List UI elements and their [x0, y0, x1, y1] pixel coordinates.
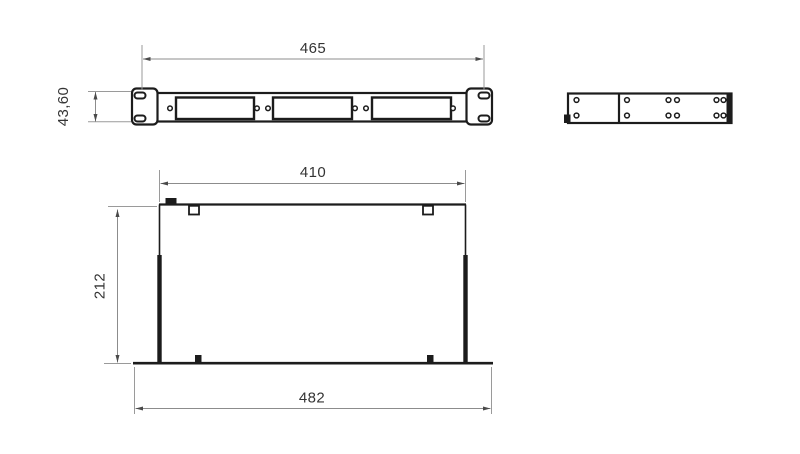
ear-slot: [135, 116, 146, 122]
top-view-front-tab: [166, 198, 177, 205]
panel-cutout: [273, 98, 352, 120]
side-hole: [574, 113, 579, 118]
arrowhead-down: [116, 355, 120, 363]
arrowhead-left: [161, 182, 169, 186]
dim-top-overall-width: 482: [135, 367, 492, 414]
arrowhead-left: [143, 57, 151, 61]
dim-front-height: 43,60: [55, 87, 131, 127]
top-view-notch: [189, 206, 199, 215]
side-hole: [714, 98, 719, 103]
side-body: [568, 94, 732, 124]
side-hole: [574, 98, 579, 103]
side-hole: [675, 98, 680, 103]
dim-label-465: 465: [300, 40, 326, 57]
dim-front-width: 465: [142, 40, 484, 90]
ear-slot: [479, 93, 490, 99]
technical-drawing-canvas: 465 43,60: [0, 0, 800, 454]
top-view-rear-tab: [195, 355, 202, 363]
front-view: [132, 89, 492, 125]
dim-label-212: 212: [92, 273, 109, 299]
top-view-rear-tab: [427, 355, 434, 363]
panel-cutout: [372, 98, 451, 120]
panel-cutout: [176, 98, 254, 120]
top-view-left-side-wall: [157, 255, 161, 364]
side-view: [564, 93, 732, 125]
side-hole: [625, 113, 630, 118]
dim-label-410: 410: [300, 164, 326, 181]
side-hole: [721, 113, 726, 118]
screw-hole: [364, 106, 369, 111]
screw-hole: [168, 106, 173, 111]
ear-slot: [479, 116, 490, 122]
side-rear-edge: [727, 93, 732, 125]
side-hole: [666, 113, 671, 118]
screw-hole: [353, 106, 358, 111]
screw-hole: [451, 106, 456, 111]
arrowhead-up: [116, 210, 120, 218]
side-hole: [625, 98, 630, 103]
ear-slot: [135, 93, 146, 99]
arrowhead-left: [136, 407, 144, 411]
side-hole: [666, 98, 671, 103]
dim-label-43-60: 43,60: [55, 87, 72, 127]
arrowhead-up: [94, 92, 98, 100]
side-hole: [714, 113, 719, 118]
arrowhead-right: [483, 407, 491, 411]
top-view-right-side-wall: [463, 255, 467, 364]
dim-top-inner-width: 410: [160, 164, 466, 202]
dim-label-482: 482: [299, 390, 325, 407]
arrowhead-right: [476, 57, 484, 61]
top-view: [133, 198, 493, 364]
arrowhead-right: [457, 182, 465, 186]
side-hole: [721, 98, 726, 103]
dim-top-depth: 212: [92, 207, 158, 364]
screw-hole: [266, 106, 271, 111]
top-view-notch: [423, 206, 433, 215]
side-hole: [675, 113, 680, 118]
screw-hole: [255, 106, 260, 111]
arrowhead-down: [94, 114, 98, 122]
side-front-tab: [564, 115, 571, 124]
drawing-svg: 465 43,60: [0, 0, 800, 454]
